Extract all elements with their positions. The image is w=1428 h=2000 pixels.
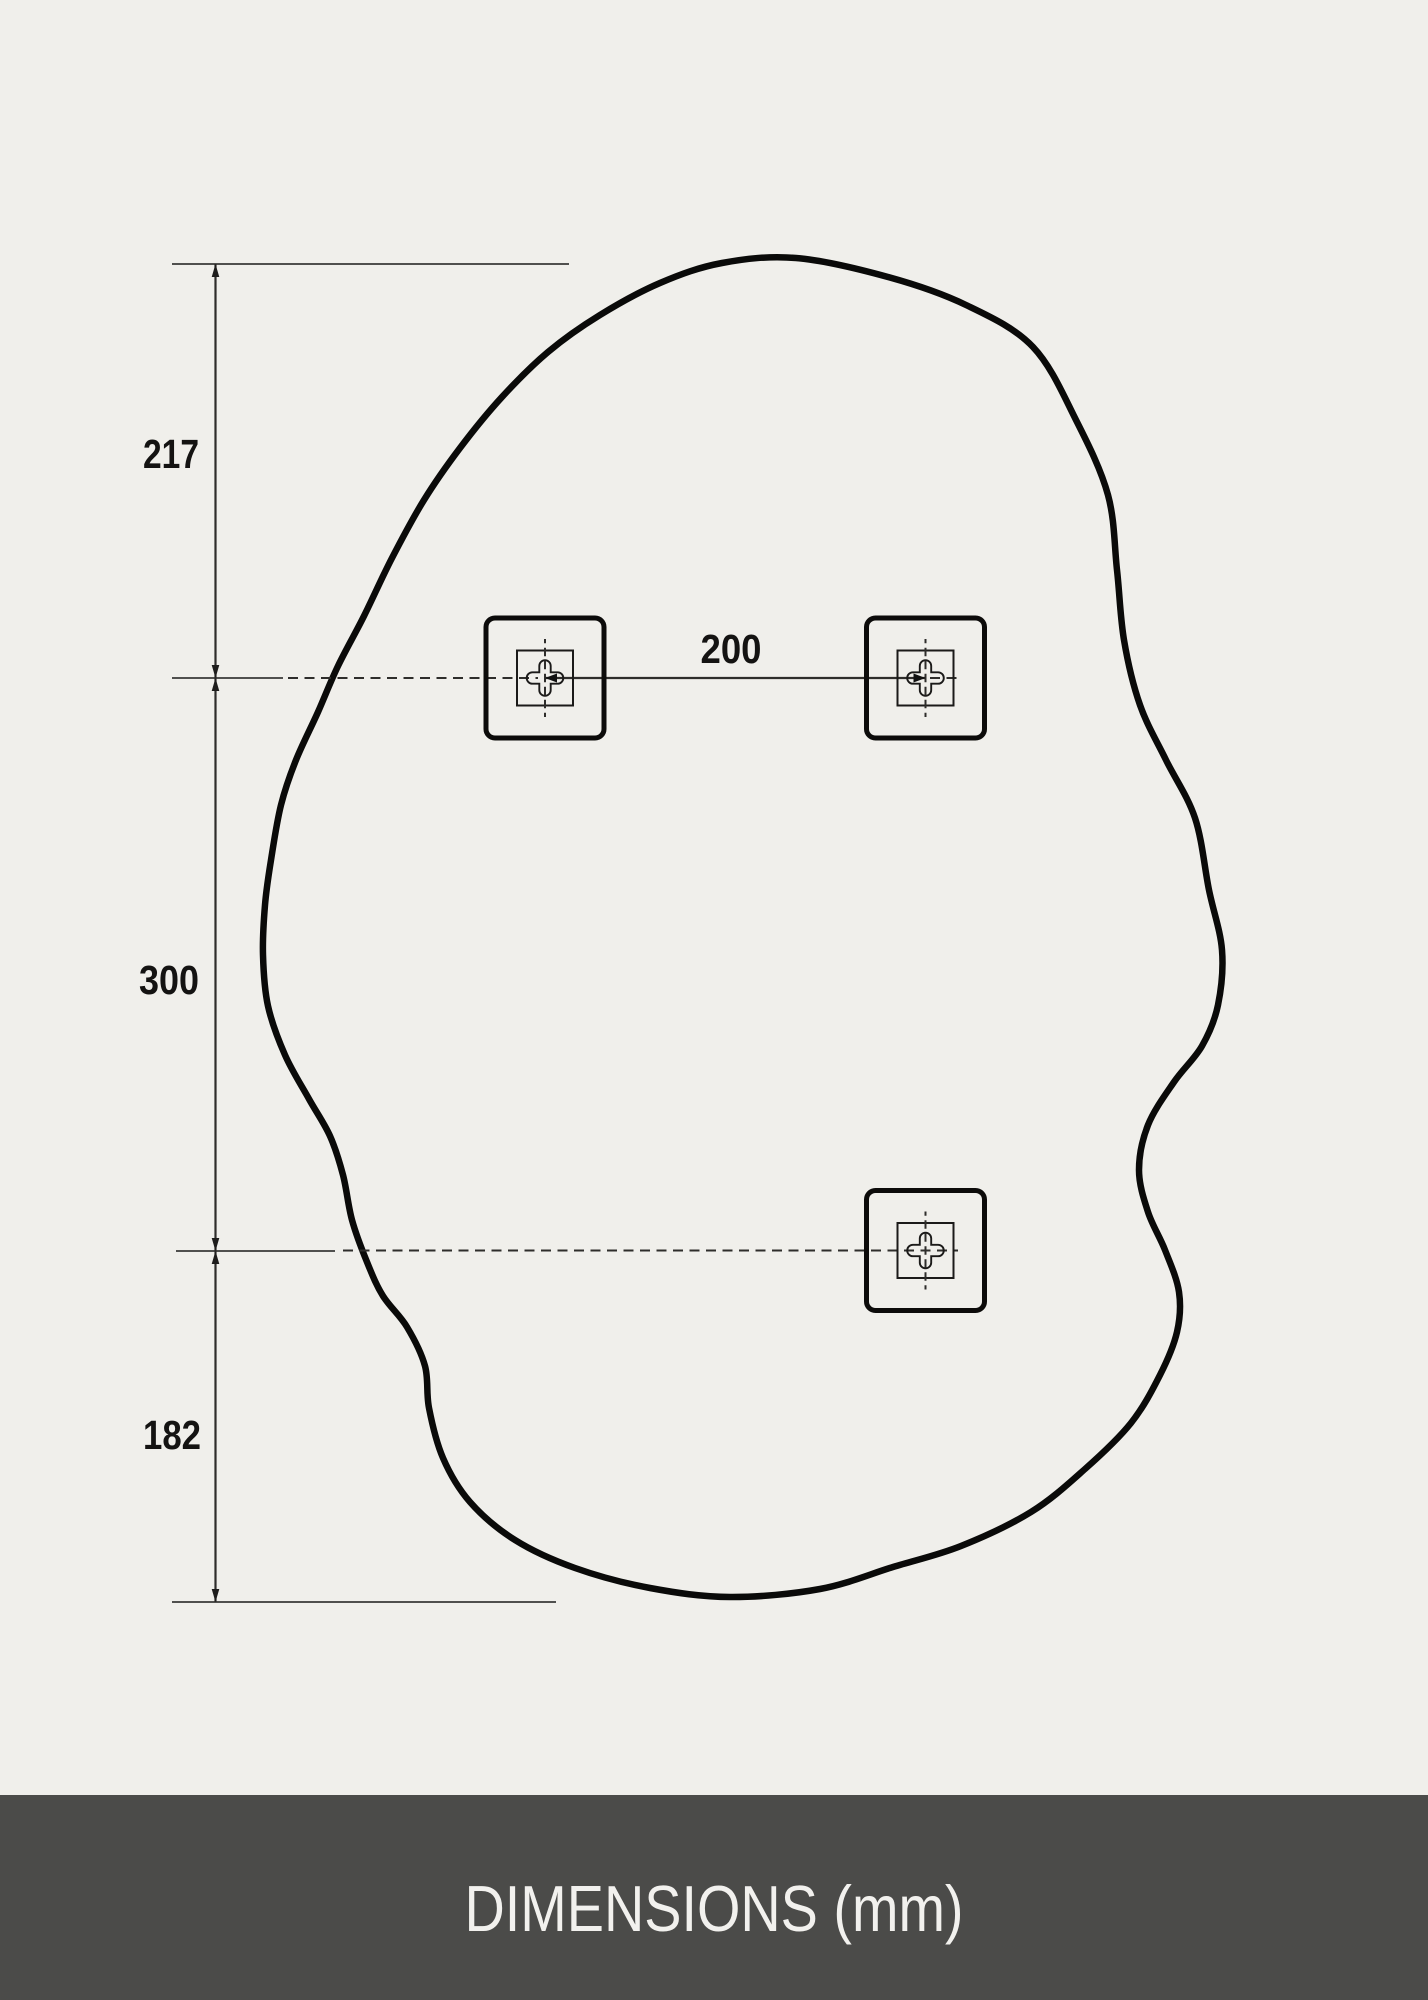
svg-text:300: 300	[139, 957, 199, 1003]
svg-text:182: 182	[143, 1412, 201, 1458]
svg-text:200: 200	[701, 626, 762, 672]
svg-text:217: 217	[143, 431, 199, 477]
svg-text:DIMENSIONS (mm): DIMENSIONS (mm)	[465, 1872, 964, 1945]
